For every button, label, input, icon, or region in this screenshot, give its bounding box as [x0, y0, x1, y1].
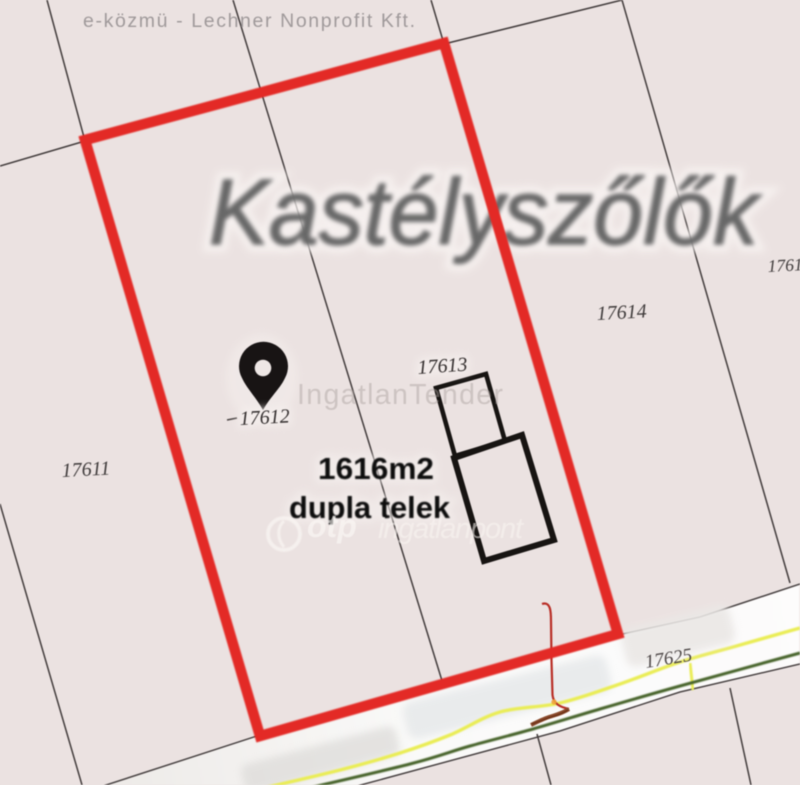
svg-text:otp: otp [307, 508, 357, 544]
svg-text:17611: 17611 [61, 457, 111, 482]
svg-text:e-közmü - Lechner Nonprofit Kf: e-közmü - Lechner Nonprofit Kft. [83, 10, 415, 32]
svg-text:17614: 17614 [596, 300, 647, 325]
svg-text:IngatlanTender: IngatlanTender [297, 379, 504, 411]
svg-text:17613: 17613 [417, 354, 468, 379]
svg-text:1616m2: 1616m2 [318, 452, 434, 486]
svg-text:17612: 17612 [239, 405, 290, 430]
svg-text:ingatlanpont: ingatlanpont [378, 513, 525, 545]
svg-text:17615: 17615 [767, 254, 800, 276]
